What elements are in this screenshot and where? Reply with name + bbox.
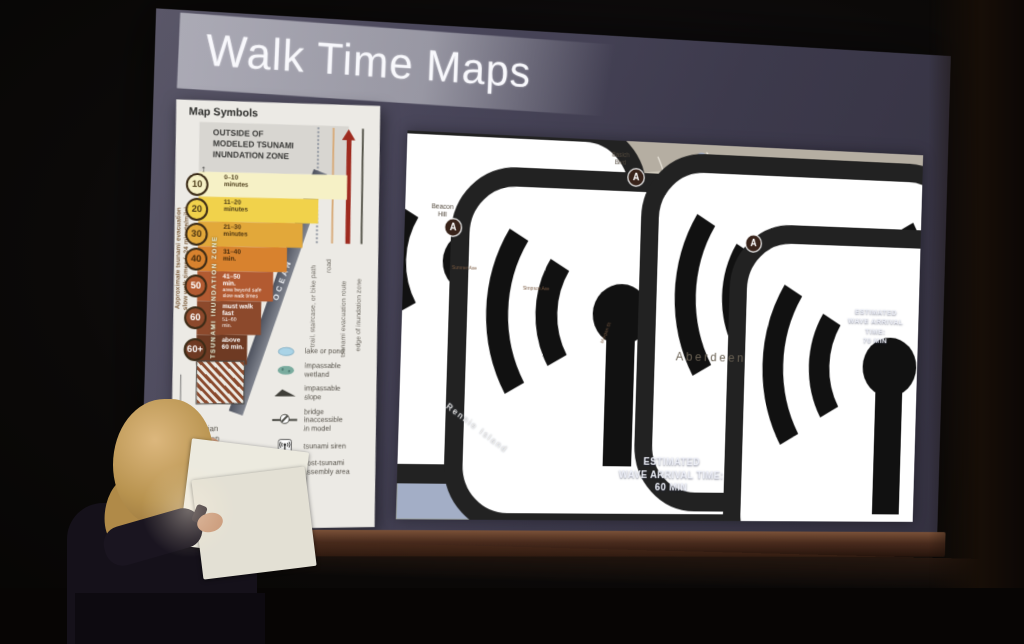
lake-icon (277, 347, 293, 356)
basich-blvd-label: Basich Blvd (604, 151, 637, 167)
street-label-simpson: Simpson Ave (523, 286, 550, 293)
band-row: 10 0–10 minutes (199, 172, 353, 200)
legend-title: Map Symbols (189, 106, 258, 120)
wave-arrival-70-label: ESTIMATED WAVE ARRIVAL TIME: 70 MIN (836, 307, 914, 347)
inundation-edge-line-icon (361, 129, 364, 244)
badge-40: 40 (185, 247, 208, 270)
band-row: 30 21–30 minutes (198, 221, 352, 248)
wetland-label: impassable wetland (304, 362, 340, 379)
band-row: 20 11–20 minutes (198, 196, 352, 224)
walk-time-map: 10 10 10 10 20 20 30 30 40 US101 US101 S… (396, 130, 923, 521)
band-row: 40 31–40 min. (197, 246, 351, 273)
stage-photo: Walk Time Maps Map Symbols Approximate t… (0, 0, 1024, 644)
walk-time-bands: 10 0–10 minutes 20 11–20 minutes 30 21–3… (196, 172, 353, 366)
wave-arrival-60-label: ESTIMATED WAVE ARRIVAL TIME: 60 MIN (582, 455, 759, 495)
slide-title: Walk Time Maps (177, 13, 619, 104)
badge-10: 10 (186, 172, 209, 195)
band-20: 11–20 minutes (198, 196, 318, 223)
badge-20: 20 (185, 197, 208, 220)
outside-zone-label: OUTSIDE OF MODELED TSUNAMI INUNDATION ZO… (199, 122, 349, 175)
stage-shadow (929, 0, 1024, 644)
beacon-hill-label: Beacon Hill (422, 203, 463, 221)
band-row: 50 41–50 min.area beyond safe slow-walk … (197, 271, 352, 303)
band-row: 60 must walk fast51–60 min. (197, 301, 352, 336)
band-10: 0–10 minutes (199, 172, 348, 200)
inundation-edge-label: edge of inundation zone (355, 278, 363, 351)
stage-light-flare (141, 463, 236, 558)
wetland-icon (277, 366, 293, 375)
city-label-aberdeen: Aberdeen (645, 348, 776, 366)
presenter (45, 385, 315, 644)
band-50: 41–50 min.area beyond safe slow-walk tim… (197, 271, 273, 302)
badge-30: 30 (185, 222, 208, 245)
presenter-body (75, 593, 265, 644)
lake-label: lake or pond (305, 347, 344, 356)
street-label-sumner: Sumner Ave (452, 265, 477, 272)
